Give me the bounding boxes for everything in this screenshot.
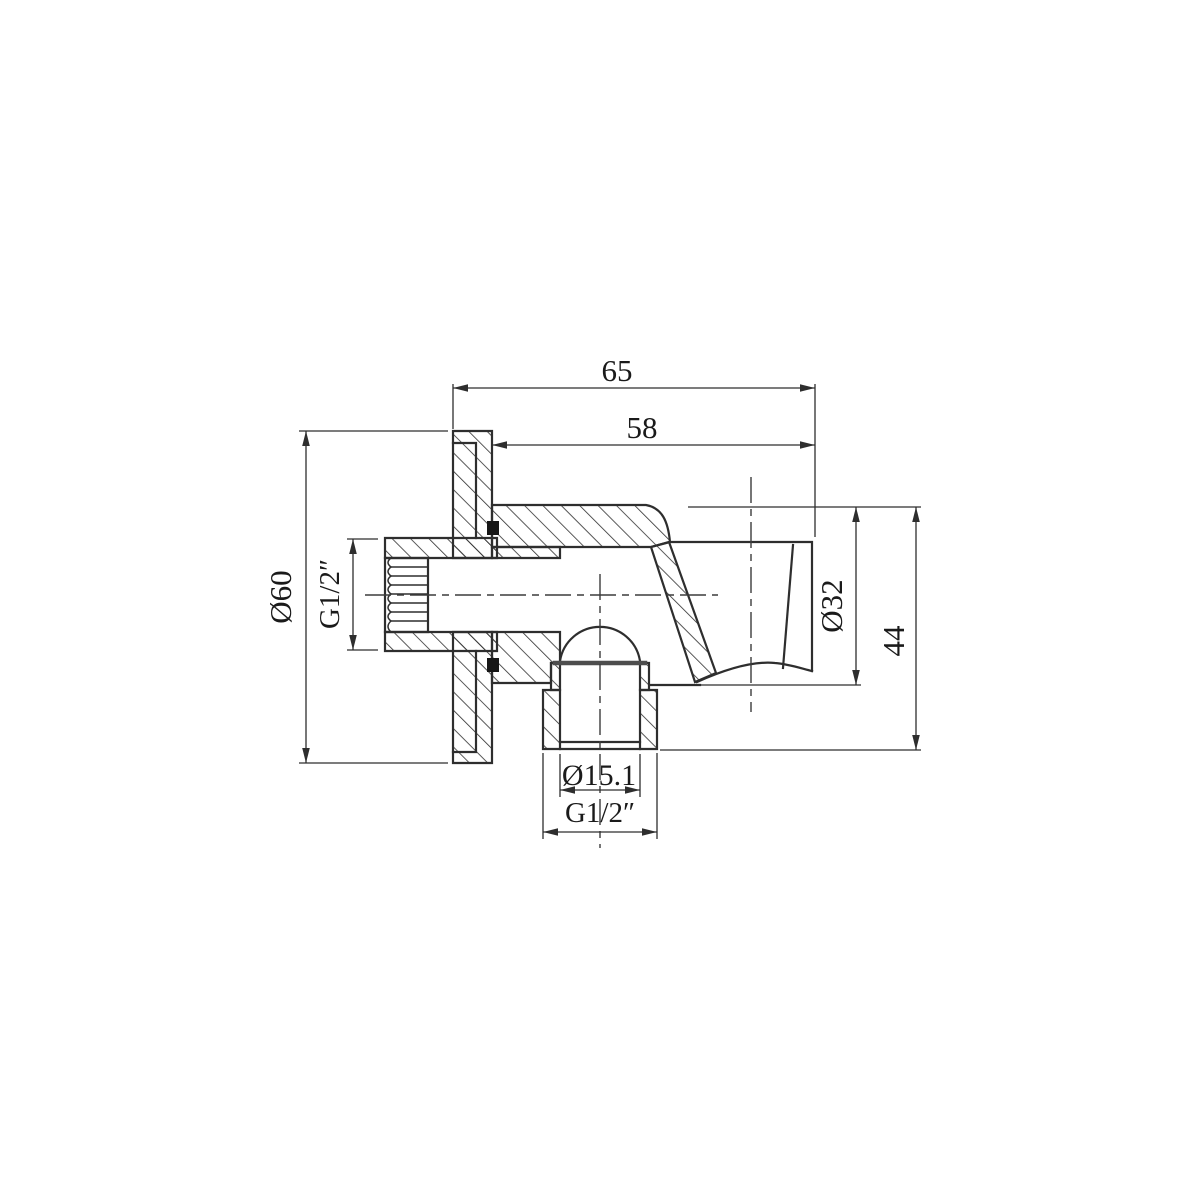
o-ring-bottom (487, 658, 499, 672)
arrowhead (302, 748, 310, 763)
dim-label-inlet-thread: G1/2″ (314, 559, 346, 629)
o-ring-top (487, 521, 499, 535)
dim-label-overall-height: 44 (876, 625, 911, 657)
dim-flange-diameter: Ø60 (263, 431, 448, 763)
arrowhead (852, 670, 860, 685)
arrowhead (492, 441, 507, 449)
arrowhead (543, 828, 558, 836)
dim-label-outlet-bore: Ø15.1 (562, 759, 636, 792)
dim-label-outlet-thread: G1/2″ (565, 797, 635, 829)
wall-flange (453, 431, 492, 763)
arrowhead (642, 828, 657, 836)
dim-outlet-bore: Ø15.1 (560, 754, 640, 797)
arrowhead (852, 507, 860, 522)
dim-label-holder-diameter: Ø32 (814, 579, 849, 632)
dim-holder-diameter: Ø32 (688, 507, 921, 685)
arrowhead (302, 431, 310, 446)
dim-label-projection-depth: 58 (627, 410, 658, 445)
arrowhead (453, 384, 468, 392)
holder-socket-cone (651, 542, 716, 682)
arrowhead (912, 507, 920, 522)
part-section (385, 431, 812, 763)
arrowhead (349, 635, 357, 650)
arrowhead (800, 384, 815, 392)
arrowhead (349, 539, 357, 554)
dimensions: 65 58 Ø60 G1/2″ Ø32 (263, 353, 921, 839)
dim-label-flange-diameter: Ø60 (263, 570, 298, 623)
technical-drawing: 65 58 Ø60 G1/2″ Ø32 (0, 0, 1200, 1200)
dim-label-overall-depth: 65 (602, 353, 633, 388)
dim-projection-depth: 58 (492, 410, 815, 502)
drawing-canvas: 65 58 Ø60 G1/2″ Ø32 (0, 0, 1200, 1200)
arrowhead (800, 441, 815, 449)
arrowhead (912, 735, 920, 750)
